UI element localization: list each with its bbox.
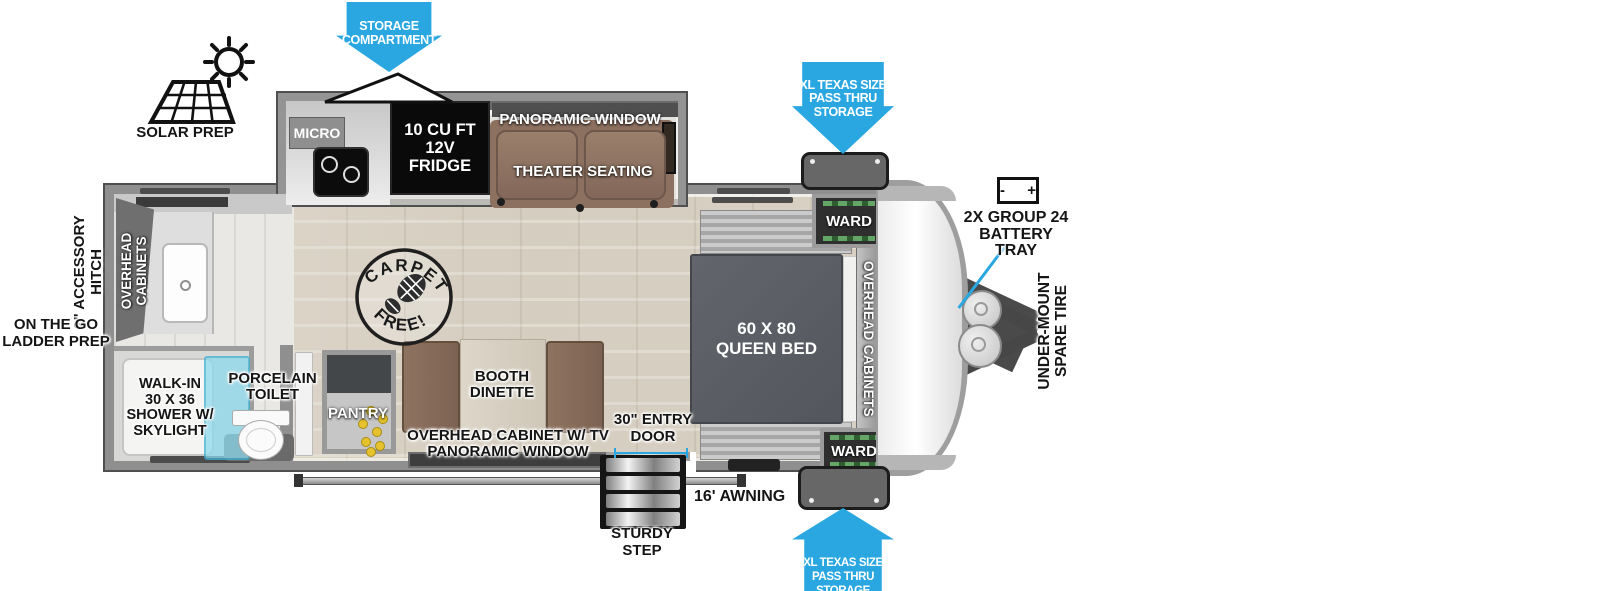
pantry-upper [327,355,391,393]
door-width-bracket [614,448,688,458]
wardrobe-label: WARD [826,213,872,230]
cupholder-icon [576,204,584,212]
carpet-free-stamp: CARPET FREE! [343,236,465,358]
dinette-bench-right [546,341,604,433]
theater-seating-label: THEATER SEATING [483,163,683,180]
microwave-label: MICRO [294,125,341,141]
wall-vent [717,188,790,194]
bathroom-cabinet-slot [136,197,228,207]
pantry-goods-icon [361,437,371,447]
awning-end-cap [294,474,303,487]
pantry-label: PANTRY [318,405,398,422]
burner-icon [343,166,360,183]
entry-steps [600,455,686,529]
spare-tire-label: UNDER-MOUNT SPARE TIRE [1035,271,1071,391]
tv-cabinet-label: OVERHEAD CABINET W/ TV PANORAMIC WINDOW [398,428,618,460]
ladder-prep-label: ON THE GO LADDER PREP [0,317,112,350]
entry-mat [728,459,780,471]
wardrobe-shelf [823,236,876,241]
front-overhead-cabinets-label: OVERHEAD CABINETS [858,249,880,429]
queen-bed: 60 X 80 QUEEN BED [690,254,843,424]
step-tread [606,494,680,508]
pantry-goods-icon [372,427,382,437]
rear-overhead-cabinets-label: OVERHEAD CABINETS [117,216,151,326]
storage-compartment-arrow: STORAGE COMPARTMENT [336,2,442,72]
screw-icon [810,159,815,164]
wardrobe-shelf [823,201,876,206]
wall-vent [712,197,793,203]
toilet-label: PORCELAIN TOILET [210,371,335,403]
toilet-seat [246,428,276,452]
screw-icon [875,159,880,164]
booth-dinette-label: BOOTH DINETTE [452,369,552,401]
panoramic-window-top-label: PANORAMIC WINDOW [478,111,682,128]
storage-compartment-label: STORAGE COMPARTMENT [342,19,436,47]
cupholder-icon [497,198,505,206]
burner-icon [321,156,338,173]
battery-tray-label: 2X GROUP 24 BATTERY TRAY [946,210,1086,260]
step-tread [606,476,680,490]
entry-door-label: 30" ENTRY DOOR [608,412,698,445]
wardrobe-top: WARD [812,194,886,248]
awning-end-cap [737,474,746,487]
pass-thru-storage-box-top [801,152,889,190]
pantry-goods-icon [366,447,376,457]
pass-thru-arrow-top: XL TEXAS SIZE PASS THRU STORAGE [792,62,894,154]
solar-prep-label: SOLAR PREP [110,124,260,141]
storage-compartment-flap [318,70,458,105]
cupholder-icon [650,200,658,208]
wall-vent [140,188,230,194]
rv-floorplan-diagram: MICRO 10 CU FT 12V FRIDGE 60 X 80 QUEEN … [0,0,1600,591]
front-cap-trim [878,186,956,201]
pass-thru-label-bottom: XL TEXAS SIZE PASS THRU STORAGE [803,557,883,591]
propane-tank-valve [971,337,986,352]
battery-icon: - + [997,177,1039,204]
pass-thru-arrow-bottom: XL TEXAS SIZE PASS THRU STORAGE [792,508,894,591]
awning-label: 16' AWNING [694,488,814,506]
pantry-goods-icon [375,441,385,451]
refrigerator-label: 10 CU FT 12V FRIDGE [404,121,476,175]
queen-bed-label: 60 X 80 QUEEN BED [716,319,817,359]
wardrobe-shelf [830,435,878,440]
wardrobe-label: WARD [831,443,877,460]
solar-prep-icon [145,36,265,128]
sturdy-step-label: STURDY STEP [592,526,692,559]
cooktop [313,147,369,197]
front-cap-trim [878,455,956,470]
step-tread [606,512,680,526]
step-tread [606,458,680,472]
screw-icon [874,498,879,503]
propane-tank-valve [974,302,988,316]
refrigerator: 10 CU FT 12V FRIDGE [390,101,490,195]
faucet-icon [180,280,191,291]
bathroom-door [295,352,313,456]
battery-terminals-label: - + [991,182,1045,199]
pass-thru-label-top: XL TEXAS SIZE PASS THRU STORAGE [800,78,887,119]
microwave: MICRO [289,117,345,149]
